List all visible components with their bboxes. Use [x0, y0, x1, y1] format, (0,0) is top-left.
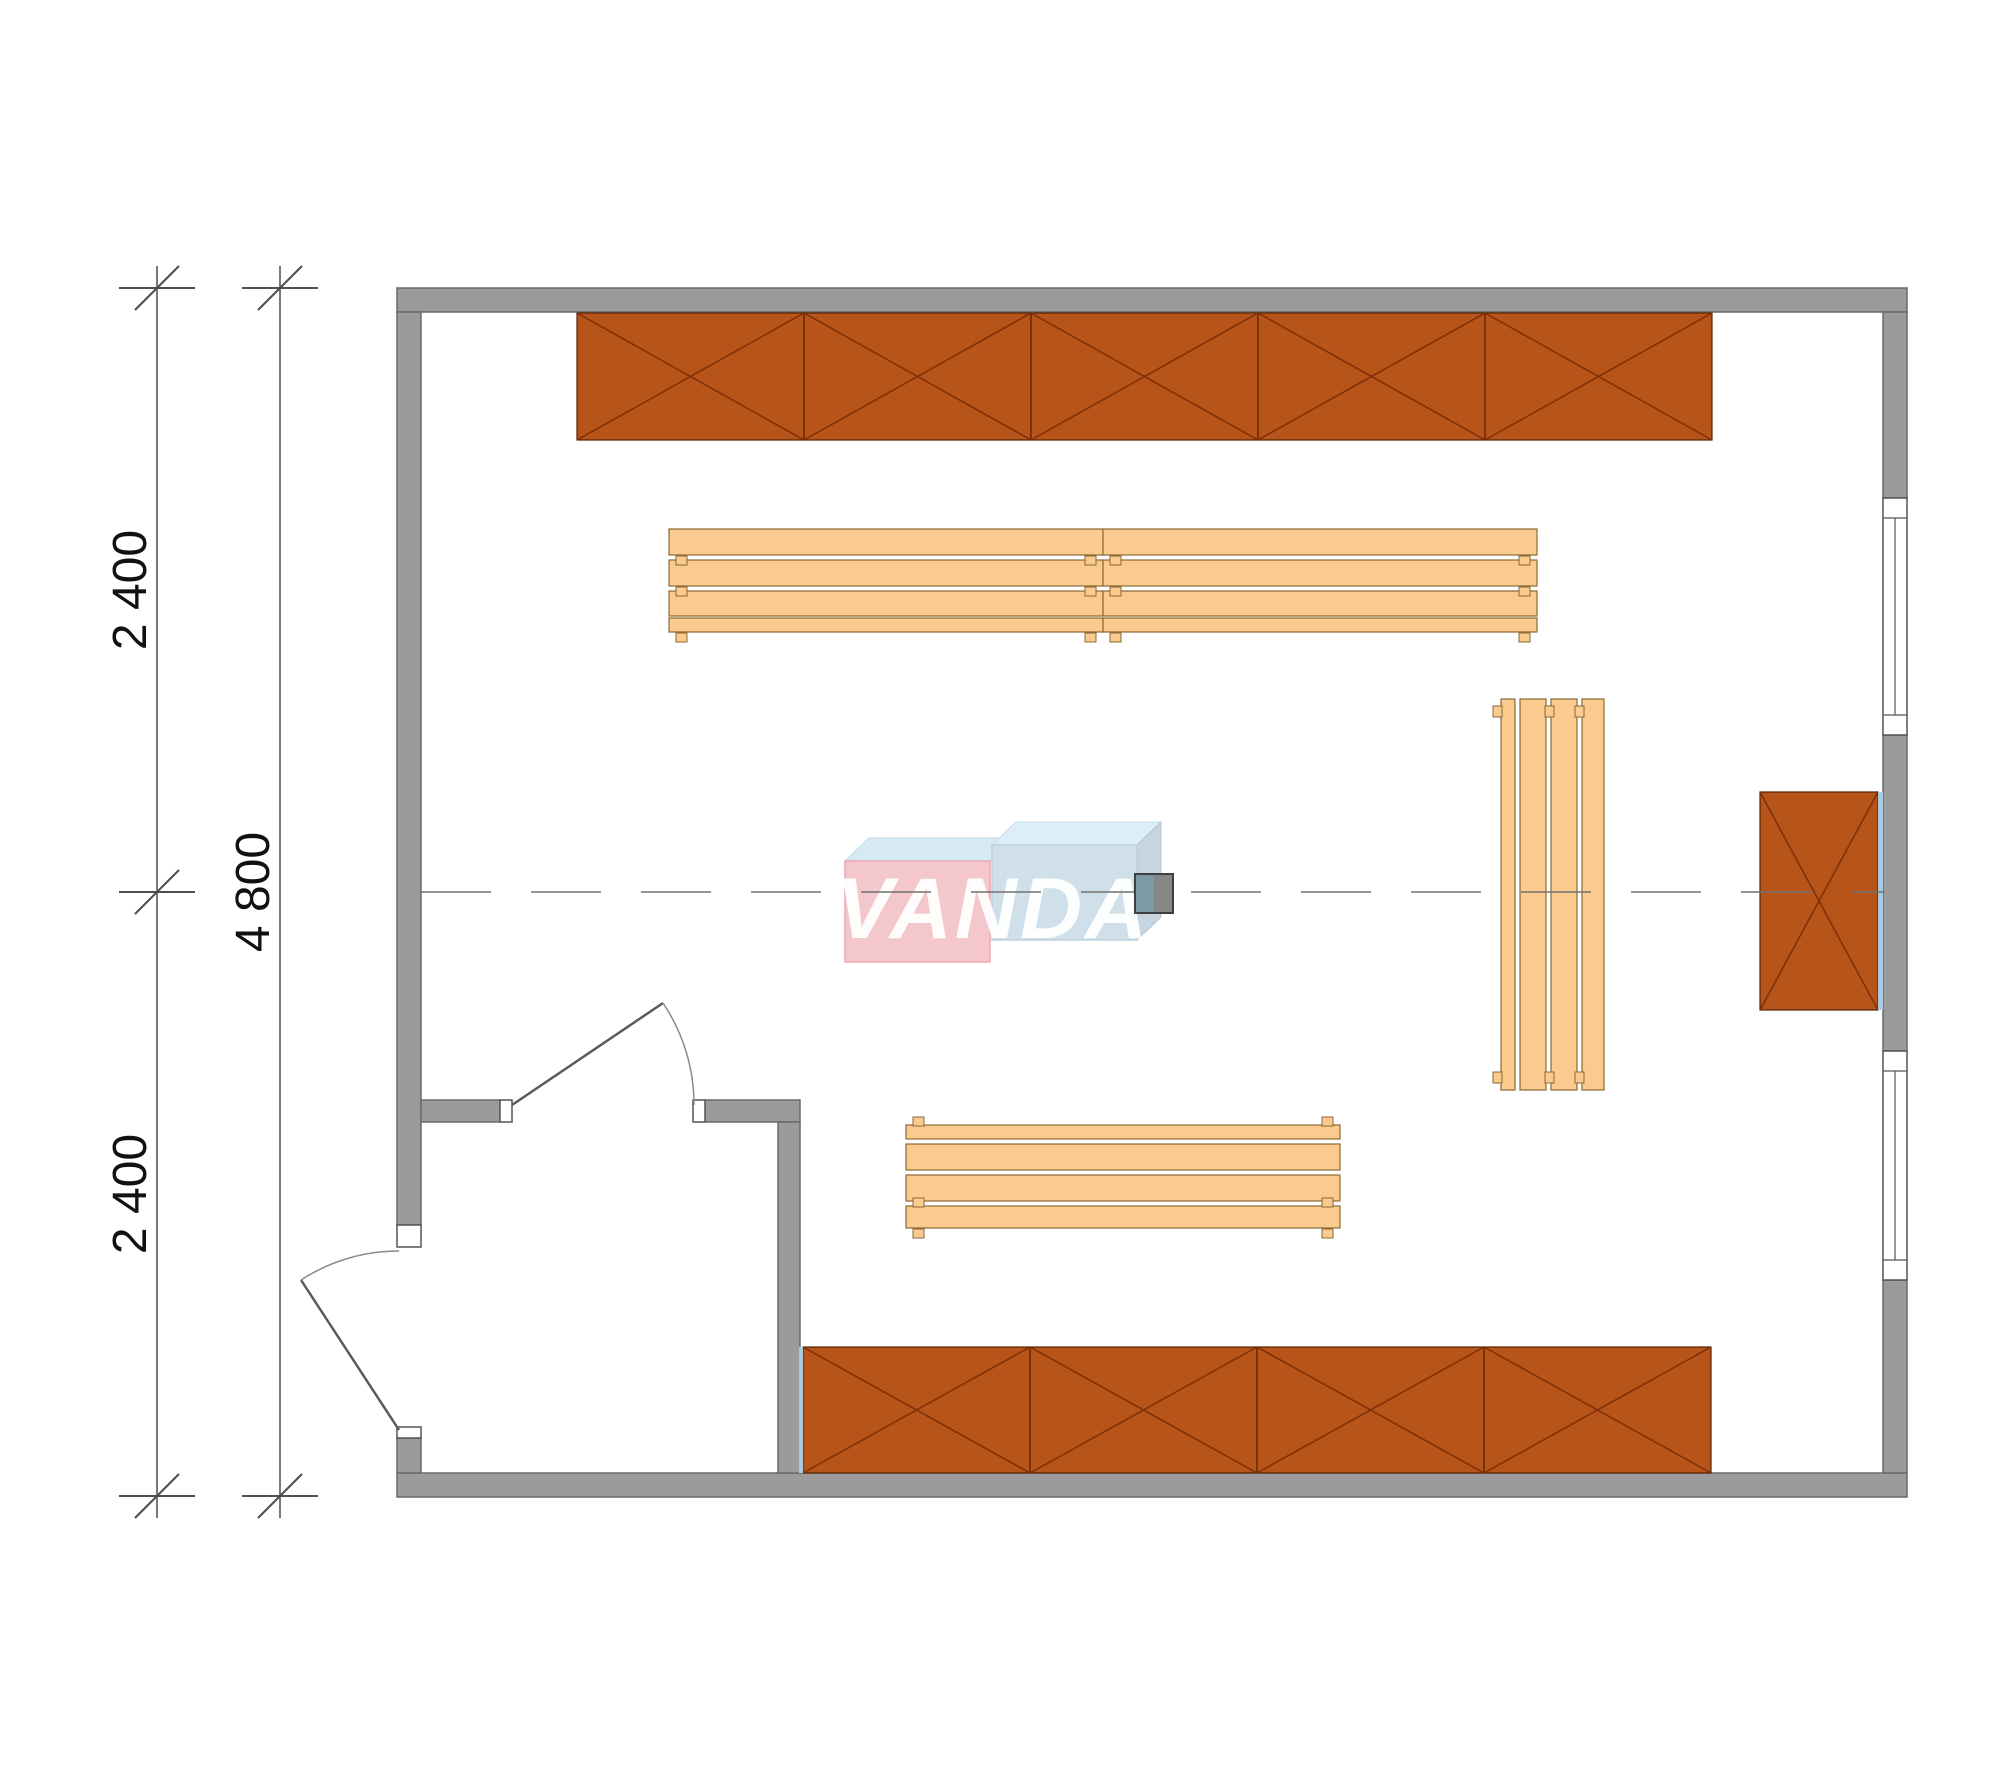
bench-foot: [1110, 587, 1121, 596]
wall-left-lower-stub: [397, 1438, 421, 1473]
exterior-door-leaf: [301, 1280, 399, 1430]
bench-slat: [1582, 699, 1604, 1090]
logo-pink-cube-top: [845, 838, 1014, 861]
bench-right-vertical: [1493, 699, 1604, 1090]
interior-door: [512, 1003, 694, 1105]
bench-slat: [906, 1175, 1340, 1201]
bench-foot: [1322, 1198, 1333, 1207]
bench-slat: [669, 618, 1103, 632]
bench-lower: [906, 1117, 1340, 1238]
dim-label-chain-top: 2 400: [104, 530, 157, 650]
wall-left-upper: [397, 312, 421, 1225]
bench-foot: [1322, 1229, 1333, 1238]
bench-foot: [1519, 556, 1530, 565]
bench-slat: [906, 1144, 1340, 1170]
bench-foot: [1085, 587, 1096, 596]
floor-plan-canvas: VANDA 2 400 2 400 4 800: [0, 0, 2000, 1786]
bench-foot: [1545, 1072, 1554, 1083]
bench-slat: [1103, 591, 1537, 616]
wall-vestibule-vertical: [778, 1122, 800, 1473]
furniture: [577, 313, 1883, 1473]
wall-vestibule-right-of-door: [705, 1100, 800, 1122]
bench-foot: [676, 556, 687, 565]
wall-bottom: [397, 1473, 1907, 1497]
wall-vestibule-left-of-door: [421, 1100, 500, 1122]
bench-foot: [1519, 633, 1530, 642]
interior-door-jamb-left: [500, 1100, 512, 1122]
bench-foot: [913, 1198, 924, 1207]
exterior-door-jamb-bottom: [397, 1427, 421, 1438]
bench-upper-left: [669, 529, 1103, 642]
wall-top: [397, 288, 1907, 312]
bench-slat: [1103, 560, 1537, 586]
interior-door-jamb-right: [693, 1100, 705, 1122]
cabinet-accent-edge: [799, 1347, 803, 1473]
bench-foot: [1575, 706, 1584, 717]
bench-slat: [906, 1206, 1340, 1228]
bench-slat: [1551, 699, 1577, 1090]
interior-door-leaf: [512, 1003, 663, 1105]
bench-foot: [1493, 1072, 1502, 1083]
bench-foot: [1085, 633, 1096, 642]
bench-slat: [1103, 618, 1537, 632]
exterior-door-swing-arc: [301, 1251, 399, 1280]
wall-right-seg3: [1883, 1280, 1907, 1473]
exterior-door-jamb-top: [397, 1225, 421, 1247]
bench-foot: [1085, 556, 1096, 565]
bench-slat: [669, 591, 1103, 616]
bench-foot: [1110, 556, 1121, 565]
bench-foot: [1575, 1072, 1584, 1083]
door-jambs: [397, 1100, 705, 1438]
bench-foot: [1519, 587, 1530, 596]
bench-slat: [669, 529, 1103, 555]
bench-foot: [1322, 1117, 1333, 1126]
exterior-door: [301, 1251, 399, 1430]
doors: [301, 1003, 694, 1430]
cabinet-run-bottom: [799, 1347, 1711, 1473]
window-right-lower: [1883, 1051, 1907, 1280]
window-right-upper: [1883, 498, 1907, 735]
cabinet-right-wall: [1760, 792, 1883, 1010]
cabinet-accent-edge: [1878, 792, 1883, 1010]
dim-label-chain-bottom: 2 400: [104, 1134, 157, 1254]
logo-text: VANDA: [836, 861, 1150, 957]
dimension-lines: 2 400 2 400 4 800: [104, 266, 318, 1518]
interior-door-swing-arc: [663, 1003, 694, 1105]
bench-upper-right: [1103, 529, 1537, 642]
bench-slat: [669, 560, 1103, 586]
dim-label-total: 4 800: [227, 832, 280, 952]
bench-slat: [1501, 699, 1515, 1090]
bench-slat: [1103, 529, 1537, 555]
logo-blue-cube-top: [992, 822, 1161, 845]
bench-foot: [1493, 706, 1502, 717]
bench-foot: [676, 587, 687, 596]
bench-foot: [913, 1117, 924, 1126]
bench-foot: [1545, 706, 1554, 717]
bench-slat: [1520, 699, 1546, 1090]
marker-gray-half: [1154, 874, 1173, 913]
dim-tick: [119, 266, 318, 1518]
bench-foot: [913, 1229, 924, 1238]
marker-teal-half: [1135, 874, 1154, 913]
centerline-marker: [1135, 874, 1173, 913]
wall-right-seg1: [1883, 312, 1907, 498]
cabinet-run-top: [577, 313, 1712, 440]
bench-foot: [676, 633, 687, 642]
bench-foot: [1110, 633, 1121, 642]
bench-slat: [906, 1125, 1340, 1139]
wall-right-seg2: [1883, 735, 1907, 1051]
